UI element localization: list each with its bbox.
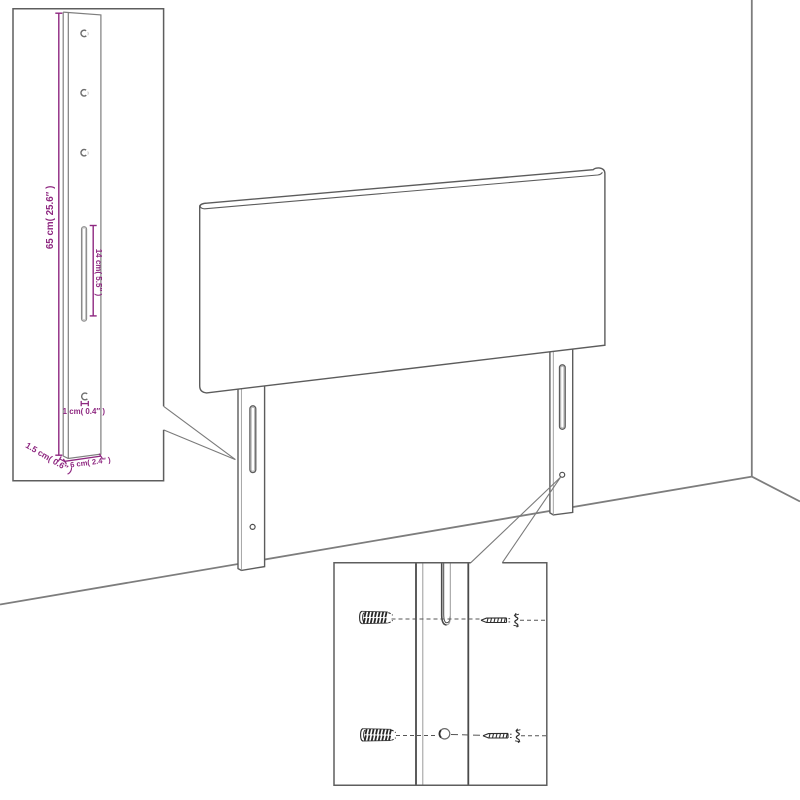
svg-text:14 cm( 5.5″ ): 14 cm( 5.5″ ) — [94, 249, 103, 297]
svg-text:1 cm( 0.4″ ): 1 cm( 0.4″ ) — [63, 407, 106, 416]
svg-text:65 cm( 25.6″ ): 65 cm( 25.6″ ) — [45, 186, 56, 250]
